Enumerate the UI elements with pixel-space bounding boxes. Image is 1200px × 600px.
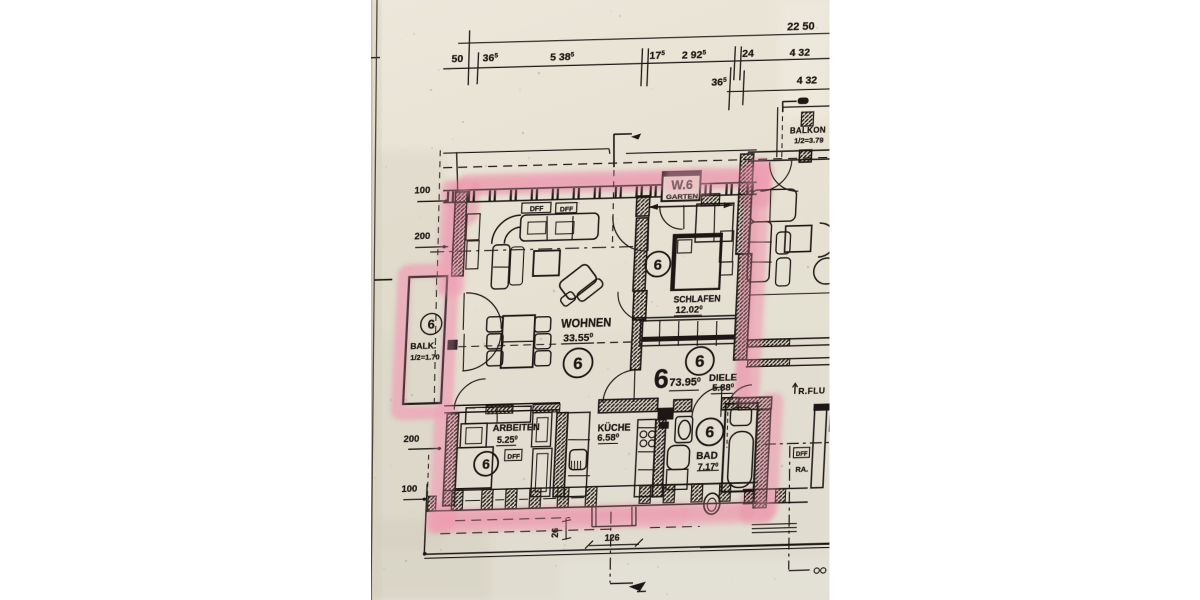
- svg-text:BALK.: BALK.: [410, 340, 436, 351]
- svg-text:73.950: 73.950: [669, 376, 701, 389]
- svg-text:DFF: DFF: [507, 454, 520, 461]
- svg-text:1/2=3.79: 1/2=3.79: [794, 136, 824, 146]
- svg-text:100: 100: [401, 484, 417, 495]
- svg-text:6: 6: [695, 352, 705, 371]
- svg-text:100: 100: [414, 185, 430, 196]
- svg-text:RA.: RA.: [795, 465, 808, 474]
- svg-text:4 32: 4 32: [789, 47, 810, 60]
- svg-text:DFF: DFF: [796, 452, 808, 458]
- svg-text:DFF: DFF: [530, 206, 545, 213]
- svg-text:BAD: BAD: [696, 451, 718, 463]
- svg-text:WOHNEN: WOHNEN: [561, 317, 612, 330]
- svg-text:1/2=1.70: 1/2=1.70: [410, 352, 440, 362]
- svg-text:6: 6: [653, 256, 662, 273]
- svg-text:50: 50: [451, 53, 463, 65]
- svg-text:200: 200: [403, 434, 419, 445]
- svg-text:6: 6: [427, 317, 435, 332]
- svg-text:33.550: 33.550: [563, 332, 594, 345]
- svg-text:BALKON: BALKON: [790, 126, 826, 136]
- svg-text:4 32: 4 32: [796, 75, 817, 88]
- svg-text:24: 24: [742, 48, 754, 60]
- svg-text:6: 6: [573, 354, 583, 373]
- svg-text:6: 6: [705, 425, 715, 442]
- svg-text:6: 6: [482, 456, 491, 472]
- svg-text:126: 126: [604, 532, 620, 542]
- svg-text:22 50: 22 50: [787, 20, 815, 33]
- svg-text:SCHLAFEN: SCHLAFEN: [673, 293, 721, 305]
- svg-text:6: 6: [653, 364, 669, 394]
- svg-text:R.FLU: R.FLU: [798, 386, 825, 397]
- svg-text:DFF: DFF: [560, 206, 574, 213]
- svg-text:200: 200: [414, 231, 430, 242]
